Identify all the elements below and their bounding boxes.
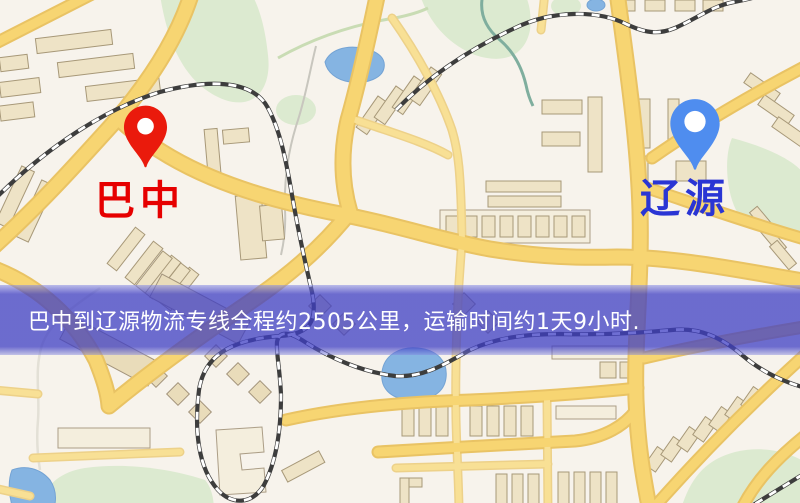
destination-pin-icon <box>668 98 722 172</box>
destination-label: 辽源 <box>640 178 730 220</box>
route-info-banner: 巴中到辽源物流专线全程约2505公里，运输时间约1天9小时. <box>0 285 800 355</box>
map-artwork <box>0 0 800 503</box>
origin-pin-icon <box>122 104 169 170</box>
origin-label: 巴中 <box>95 180 185 222</box>
route-info-text: 巴中到辽源物流专线全程约2505公里，运输时间约1天9小时. <box>28 304 640 336</box>
map-screenshot: 巴中 辽源 巴中到辽源物流专线全程约2505公里，运输时间约1天9小时. <box>0 0 800 503</box>
